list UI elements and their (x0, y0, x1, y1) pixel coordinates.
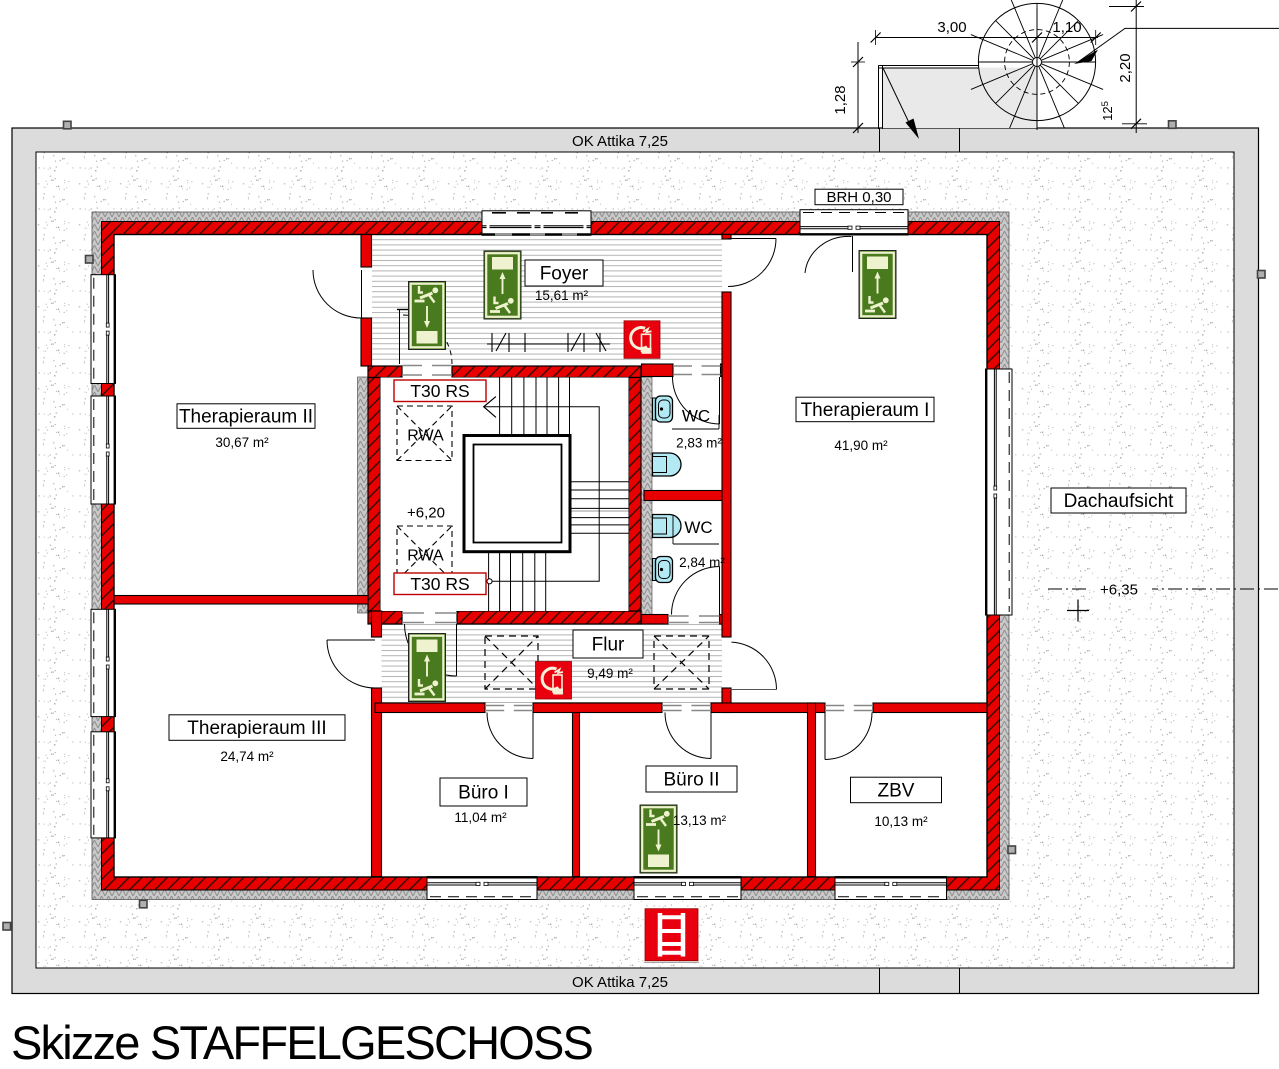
svg-text:Dachaufsicht: Dachaufsicht (1064, 491, 1175, 512)
svg-text:Skizze STAFFELGESCHOSS: Skizze STAFFELGESCHOSS (11, 1016, 593, 1069)
svg-text:Flur: Flur (592, 635, 625, 656)
svg-text:WC: WC (684, 518, 712, 537)
svg-text:41,90 m²: 41,90 m² (834, 438, 888, 453)
svg-text:15,61 m²: 15,61 m² (535, 288, 589, 303)
svg-text:2,83 m²: 2,83 m² (676, 436, 722, 451)
svg-text:Foyer: Foyer (540, 264, 589, 285)
svg-text:OK Attika 7,25: OK Attika 7,25 (572, 133, 668, 150)
svg-text:Büro II: Büro II (664, 770, 720, 791)
svg-text:RWA: RWA (407, 548, 444, 565)
svg-text:RWA: RWA (407, 428, 444, 445)
svg-text:WC: WC (682, 407, 710, 426)
svg-text:1,10: 1,10 (1052, 19, 1081, 36)
svg-text:3,00: 3,00 (937, 19, 966, 36)
svg-text:Büro I: Büro I (458, 783, 509, 804)
svg-text:Therapieraum I: Therapieraum I (801, 400, 930, 421)
svg-text:+6,35: +6,35 (1100, 582, 1138, 599)
svg-text:13,13 m²: 13,13 m² (673, 813, 727, 828)
svg-text:24,74 m²: 24,74 m² (220, 749, 274, 764)
svg-text:OK Attika 7,25: OK Attika 7,25 (572, 974, 668, 991)
svg-text:2,84 m²: 2,84 m² (679, 555, 725, 570)
svg-text:30,67 m²: 30,67 m² (215, 435, 269, 450)
svg-text:Therapieraum III: Therapieraum III (187, 718, 326, 739)
svg-text:+6,20: +6,20 (407, 505, 445, 522)
svg-text:10,13 m²: 10,13 m² (874, 814, 928, 829)
svg-text:T30 RS: T30 RS (410, 381, 469, 401)
svg-text:1,28: 1,28 (832, 85, 849, 114)
svg-text:Therapieraum II: Therapieraum II (179, 407, 313, 428)
svg-text:BRH 0,30: BRH 0,30 (826, 189, 891, 206)
svg-text:ZBV: ZBV (878, 781, 915, 802)
svg-text:9,49 m²: 9,49 m² (587, 666, 633, 681)
svg-text:11,04 m²: 11,04 m² (454, 810, 507, 825)
svg-text:2,20: 2,20 (1117, 53, 1134, 82)
svg-text:T30 RS: T30 RS (410, 574, 469, 594)
